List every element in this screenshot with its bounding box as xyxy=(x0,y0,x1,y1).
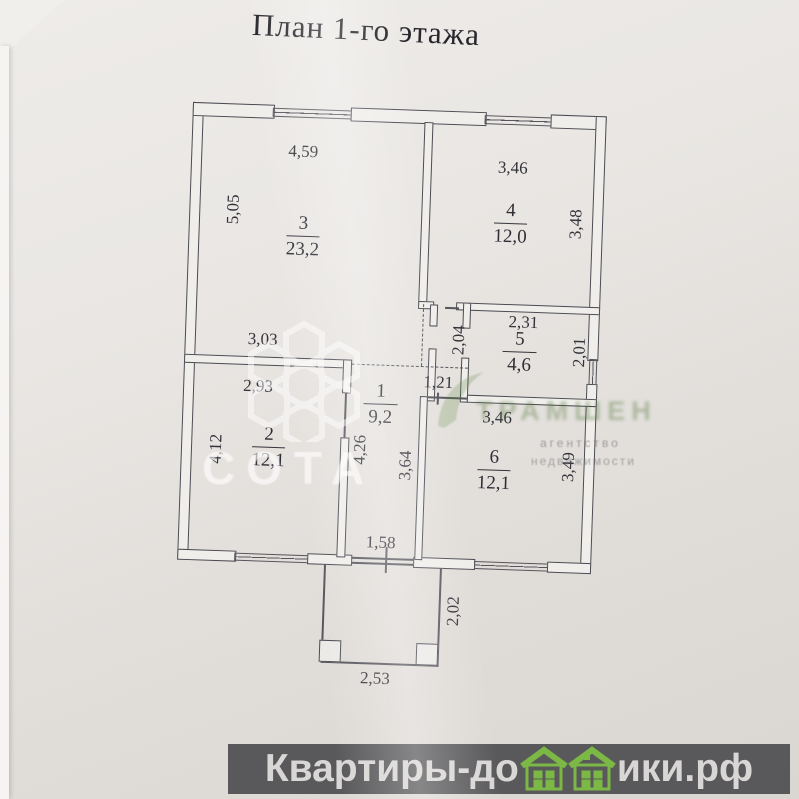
wall-room3-room4 xyxy=(418,122,433,306)
window-room4-top xyxy=(484,115,552,126)
room-label-5: 5 4,6 xyxy=(494,329,546,377)
dim-top-right: 3,46 xyxy=(498,158,528,179)
wall-hall-room6 xyxy=(414,396,428,560)
dim-corridor: 2,04 xyxy=(448,325,469,355)
wall-bottom-3 xyxy=(413,557,475,570)
dim-right-upper: 3,48 xyxy=(566,209,587,239)
room3-area: 23,2 xyxy=(275,236,331,261)
dim-entrance: 1,58 xyxy=(365,532,395,553)
dim-porch-right: 2,02 xyxy=(443,596,464,626)
porch-post-right xyxy=(416,643,439,666)
room4-number: 4 xyxy=(494,201,528,225)
dim-hall-right: 3,64 xyxy=(395,450,416,480)
wall-bottom-1 xyxy=(177,549,236,562)
window-room6-bottom xyxy=(474,561,549,572)
site-name-left: Квартиры-до xyxy=(265,744,519,794)
agency-watermark-subtext-2: недвижимости xyxy=(531,454,636,468)
room-label-6: 6 12,1 xyxy=(466,447,523,495)
paper-corner-highlight xyxy=(0,0,64,58)
room5-number: 5 xyxy=(503,329,537,353)
dashed-boundary-vertical xyxy=(421,304,424,366)
room3-number: 3 xyxy=(286,213,320,237)
wall-left xyxy=(177,102,204,560)
dim-porch-bottom: 2,53 xyxy=(360,668,390,689)
room6-number: 6 xyxy=(477,447,511,471)
wall-right-1 xyxy=(587,116,607,361)
paper-edge xyxy=(0,46,9,799)
sota-watermark-text: СОТА xyxy=(202,441,376,495)
agency-watermark-subtext-1: агентство xyxy=(540,436,621,450)
honeycomb-watermark-icon xyxy=(238,320,370,442)
scanned-floor-plan-page: План 1-го этажа xyxy=(0,0,799,799)
corridor-jamb-top xyxy=(429,304,438,326)
dim-left-upper: 5,05 xyxy=(223,194,244,224)
tick-corridor xyxy=(445,307,459,309)
green-houses-icon xyxy=(520,746,616,792)
dim-room5-right: 2,01 xyxy=(569,337,590,367)
wall-bottom-4 xyxy=(547,562,591,575)
window-room3-top xyxy=(273,108,353,120)
wall-top-1 xyxy=(193,102,275,119)
agency-watermark-text: ТРАМШЕН xyxy=(476,396,657,427)
window-room2-bottom xyxy=(234,553,309,564)
site-watermark-bar: Квартиры-до ики.рф xyxy=(228,744,790,794)
page-title: План 1-го этажа xyxy=(251,7,481,53)
entrance-door-threshold-2 xyxy=(351,562,414,566)
room-label-3: 3 23,2 xyxy=(275,213,332,261)
room6-area: 12,1 xyxy=(466,470,522,495)
site-name-right: ики.рф xyxy=(617,744,753,794)
porch-post-left xyxy=(319,640,342,663)
dim-top-left: 4,59 xyxy=(288,141,318,162)
window-room5-right xyxy=(588,359,597,386)
wall-bottom-2 xyxy=(307,553,352,566)
wall-top-2 xyxy=(350,107,486,126)
room5-area: 4,6 xyxy=(494,352,545,377)
room-label-4: 4 12,0 xyxy=(482,200,539,248)
room4-area: 12,0 xyxy=(482,223,538,248)
entrance-door-threshold xyxy=(351,557,414,561)
